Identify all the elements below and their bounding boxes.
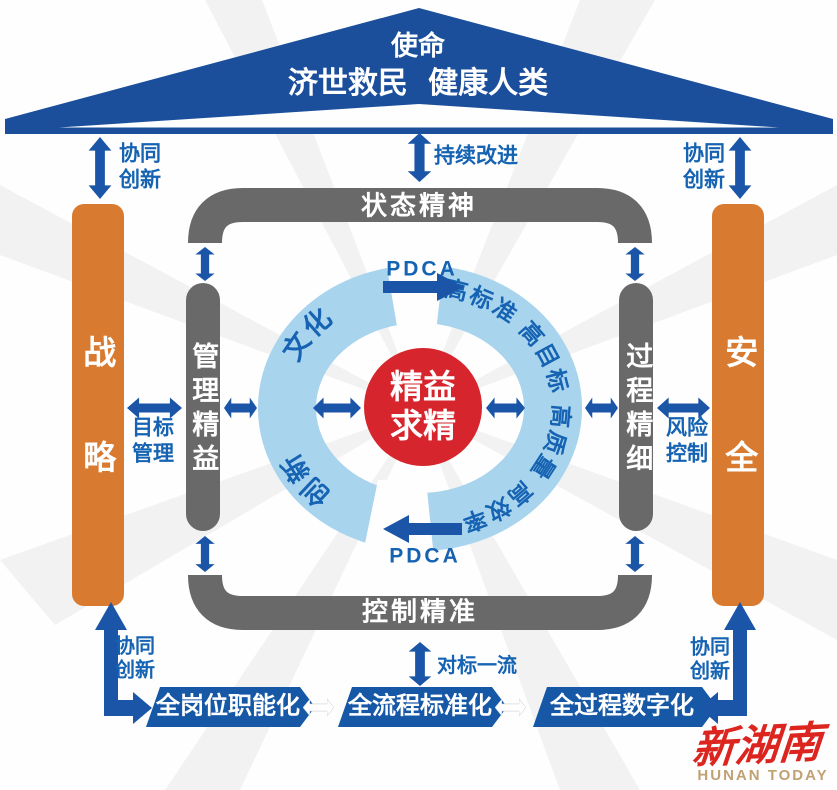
frame-left-label: 管理精益 xyxy=(187,342,219,478)
frame-corner-arrow-bottom-right-icon xyxy=(625,536,644,572)
collab-top-right-arrow-icon xyxy=(729,137,752,199)
collab-bottom-left-label: 协同创新 xyxy=(112,635,159,684)
frame-right-label: 过程精细 xyxy=(621,342,653,478)
collab-top-left-label: 协同创新 xyxy=(115,141,164,192)
benchmark-arrow-icon xyxy=(409,642,432,686)
core-label: 精益求精 xyxy=(384,368,462,446)
banner-link-arrow-2-icon xyxy=(495,699,526,716)
banner-2-label: 全流程标准化 xyxy=(348,693,492,722)
continuous-improvement-arrow-icon xyxy=(408,133,432,182)
benchmark-label: 对标一流 xyxy=(437,654,517,678)
banner-1-label: 全岗位职能化 xyxy=(156,693,300,722)
mission-text: 济世救民 健康人类 xyxy=(288,66,548,102)
logo-tagline: HUNAN TODAY xyxy=(697,767,828,785)
banner-3-label: 全过程数字化 xyxy=(550,693,694,722)
collab-top-left-arrow-icon xyxy=(89,137,112,199)
risk-control-label: 风险控制 xyxy=(662,415,711,466)
pdca-bottom-label: PDCA xyxy=(389,543,461,568)
frame-corner-arrow-bottom-left-icon xyxy=(195,536,214,572)
pillar-safety-label: 安全 xyxy=(719,335,759,545)
frame-top-label: 状态精神 xyxy=(361,190,477,221)
ring-to-core-left-arrow-icon xyxy=(313,398,361,419)
banner-link-arrow-1-icon xyxy=(303,699,334,716)
frame-corner-arrow-top-left-icon xyxy=(195,247,214,281)
diagram-canvas: 高标准 高目标 高质量 高效率 创新 文化 xyxy=(0,0,837,790)
frame-bottom-label: 控制精准 xyxy=(362,596,478,627)
core-to-ring-right-arrow-icon xyxy=(486,398,525,419)
pdca-top-label: PDCA xyxy=(386,256,458,281)
collab-bottom-right-label: 协同创新 xyxy=(687,636,734,685)
goal-management-label: 目标管理 xyxy=(128,415,177,466)
frame-corner-arrow-top-right-icon xyxy=(625,247,644,281)
pillar-strategy-label: 战略 xyxy=(77,335,117,545)
ring-to-right-bar-arrow-icon xyxy=(585,398,618,419)
mission-label: 使命 xyxy=(391,30,445,62)
left-bar-to-ring-arrow-icon xyxy=(224,398,257,419)
collab-top-right-label: 协同创新 xyxy=(679,141,728,192)
continuous-improvement-label: 持续改进 xyxy=(434,143,518,168)
